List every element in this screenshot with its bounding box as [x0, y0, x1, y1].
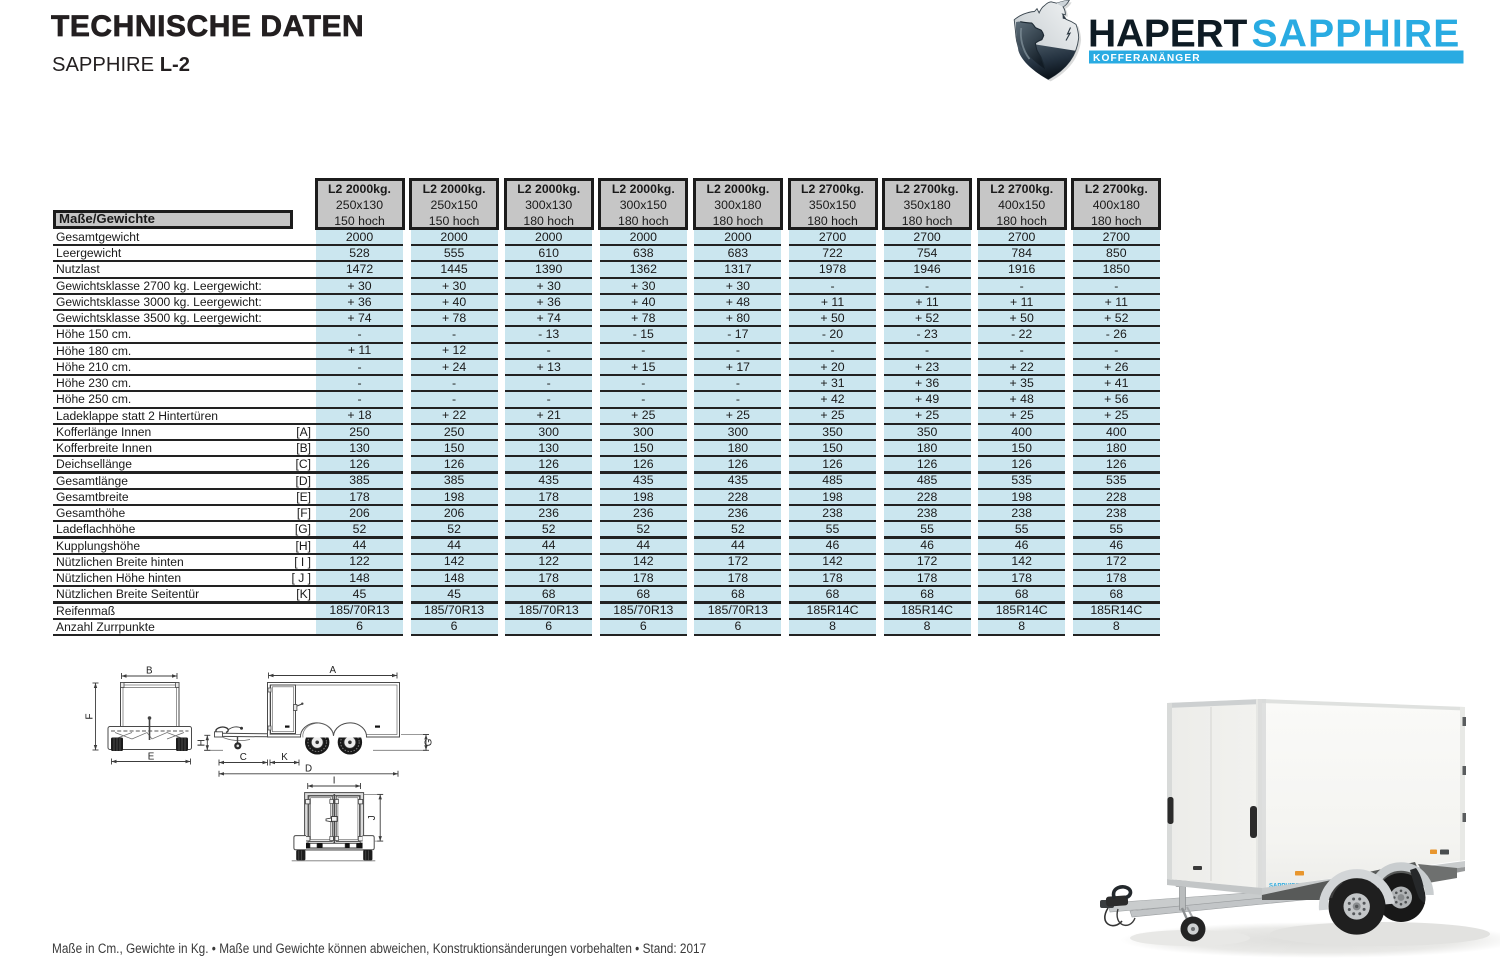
- svg-text:J: J: [367, 815, 378, 820]
- svg-text:D: D: [305, 763, 312, 774]
- svg-text:B: B: [146, 666, 153, 677]
- svg-text:C: C: [240, 752, 247, 763]
- svg-text:H: H: [196, 739, 207, 746]
- svg-text:A: A: [329, 665, 336, 676]
- svg-text:K: K: [281, 752, 288, 763]
- svg-text:E: E: [148, 752, 155, 763]
- svg-text:I: I: [333, 776, 336, 787]
- svg-text:G: G: [424, 739, 435, 747]
- svg-text:F: F: [85, 713, 96, 719]
